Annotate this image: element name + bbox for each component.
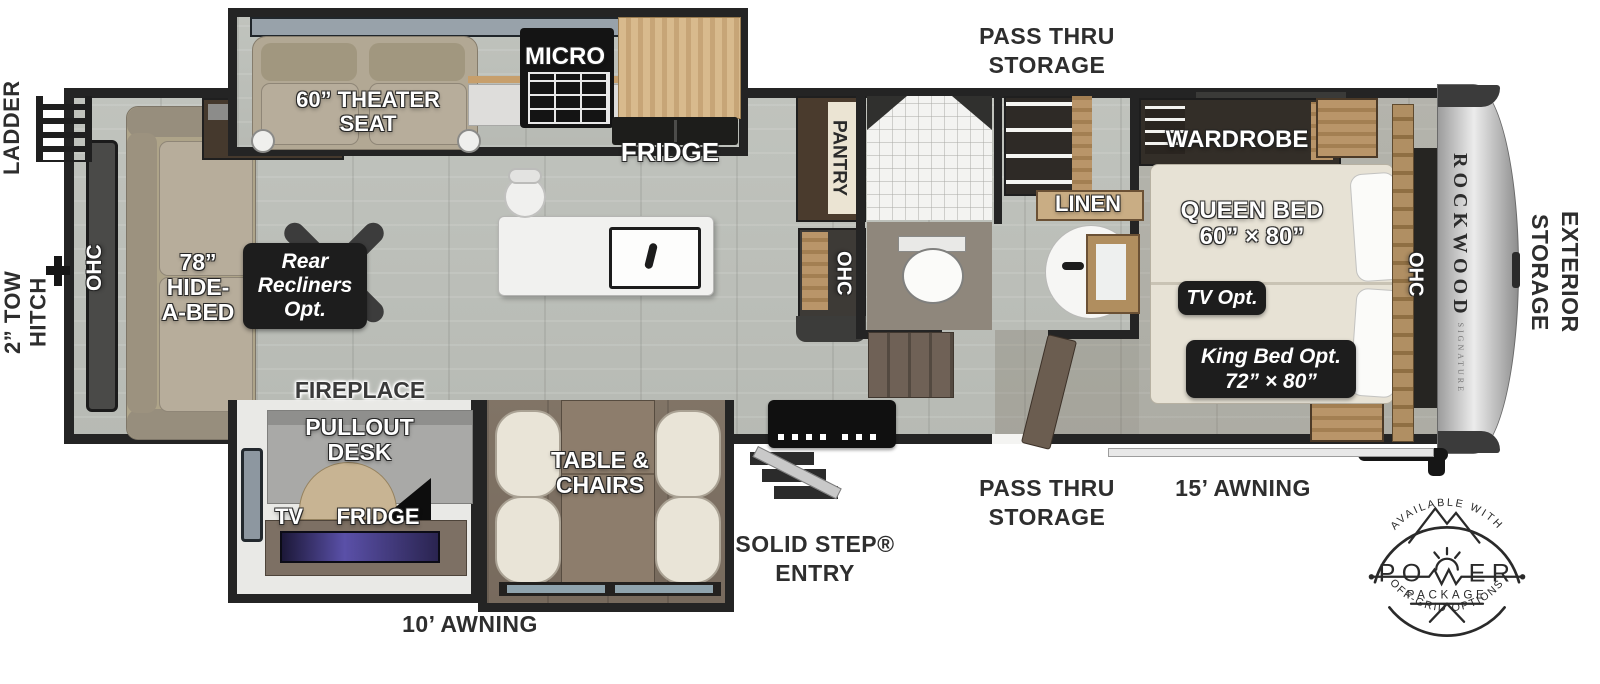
desk-window [241, 448, 263, 542]
toilet-bowl [902, 248, 964, 304]
awning-rail-front [1108, 448, 1434, 457]
dinette-chair [495, 496, 561, 584]
micro-label: MICRO [500, 44, 630, 70]
ladder-icon [36, 96, 92, 162]
brand-name: ROCKWOOD [1449, 153, 1471, 319]
rear-ohc-label: OHC [84, 228, 107, 308]
linen-label: LINEN [1038, 192, 1138, 216]
awning-front-label: 15’ AWNING [1148, 476, 1338, 501]
kingpin [1512, 252, 1520, 288]
shower [867, 96, 992, 220]
theater-seatback [369, 43, 465, 81]
shower-glass [867, 96, 907, 130]
wardrobe-label: WARDROBE [1152, 127, 1322, 153]
queen-bed-label: QUEEN BED 60” × 80” [1162, 198, 1342, 250]
bedroom-steps [868, 332, 954, 398]
desk-tv-label: TV [262, 505, 316, 529]
cap-bottom-trim [1438, 431, 1500, 453]
theater-seat-label: 60” THEATER SEAT [268, 88, 468, 136]
bedroom-ohc-label: OHC [1404, 234, 1426, 314]
kitchen-ohc-label: OHC [832, 236, 854, 310]
kitchen-cabinet [618, 17, 741, 119]
rear-recliners-option-badge: Rear Recliners Opt. [243, 243, 367, 329]
bath-divider [994, 92, 1002, 224]
exterior-storage-label: EXTERIOR STORAGE [1524, 196, 1584, 348]
cap-top-trim [1438, 85, 1500, 107]
awning-rear-label: 10’ AWNING [378, 612, 562, 637]
linen-closet-shelves [1004, 96, 1074, 196]
sun-icon [1436, 559, 1458, 570]
dinette-window [499, 582, 721, 596]
bath-wall-left [856, 92, 865, 339]
pullout-desk-label: PULLOUT DESK [287, 415, 432, 465]
king-bed-option-badge: King Bed Opt. 72” × 80” [1186, 340, 1356, 398]
dinette-slideout [478, 400, 734, 612]
solid-step-entry-label: SOLID STEP® ENTRY [722, 530, 908, 588]
desk-fridge-label: FRIDGE [328, 505, 428, 529]
pass-thru-storage-top-label: PASS THRU STORAGE [947, 22, 1147, 80]
dinette-chair [655, 496, 721, 584]
island-sink [609, 227, 701, 289]
floorplan-canvas: OHC 78” HIDE- A-BED Rear Recliners Opt. [0, 0, 1600, 684]
nightstand-top [1316, 98, 1378, 158]
kitchen-island [498, 216, 714, 296]
fridge-label: FRIDGE [600, 138, 740, 166]
ladder-label: LADDER [0, 70, 24, 186]
tv-option-badge: TV Opt. [1178, 281, 1266, 315]
linen-closet-side [1072, 96, 1092, 192]
theater-seatback [261, 43, 357, 81]
island-stool [502, 168, 544, 214]
brand-mark: ROCKWOOD SIGNATURE [1448, 146, 1471, 402]
tow-hitch-label: 2” TOW HITCH [0, 226, 51, 398]
table-chairs-label: TABLE & CHAIRS [520, 448, 680, 498]
vanity-faucet [1062, 262, 1084, 270]
fireplace-glass [280, 531, 440, 563]
brand-series: SIGNATURE [1456, 323, 1465, 394]
pantry-label: PANTRY [828, 102, 849, 214]
badge-word-start: PO [1379, 559, 1428, 587]
shower-glass [952, 96, 992, 130]
solid-step-icon [748, 450, 852, 524]
vanity-cabinet [1086, 234, 1140, 314]
power-package-badge: AVAILABLE WITH PO ER PACKAGE OFF-GRID OP… [1357, 467, 1537, 647]
sun-rays [1434, 548, 1459, 558]
pass-thru-storage-bottom-label: PASS THRU STORAGE [947, 474, 1147, 532]
fireplace-label: FIREPLACE [280, 378, 440, 403]
outside-griddle [768, 400, 896, 448]
stove-grate [528, 72, 610, 124]
